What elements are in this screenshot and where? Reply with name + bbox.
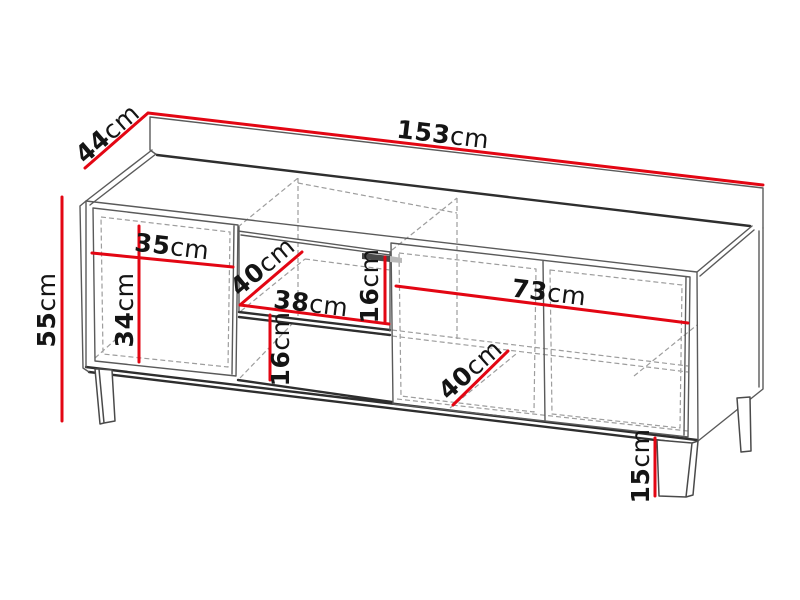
right-side-panel [697, 226, 763, 441]
left-side-panel [80, 201, 89, 372]
dimension-label-leg-height: 15cm [626, 429, 655, 504]
dimension-diagram: 153cm 44cm 55cm 35cm 34cm 40cm 38cm 16cm… [0, 0, 800, 600]
dimension-lines [62, 113, 763, 496]
dimension-label-total-width: 153cm [395, 115, 491, 155]
front-left-leg [95, 369, 115, 424]
door-handle-side [390, 256, 402, 263]
dimension-label-left-inner-height: 34cm [110, 273, 139, 348]
dimension-label-total-height: 55cm [32, 273, 61, 348]
dimension-label-upper-shelf-height: 16cm [355, 249, 384, 324]
carcass-heavy-edges [86, 155, 750, 445]
dimension-label-lower-shelf-height: 16cm [266, 312, 295, 387]
hidden-lines [95, 178, 697, 431]
back-right-leg [737, 397, 751, 452]
dimension-label-right-door-width: 73cm [510, 274, 588, 312]
dimension-label-depth: 44cm [70, 98, 146, 169]
tv-stand-drawing: 153cm 44cm 55cm 35cm 34cm 40cm 38cm 16cm… [0, 0, 800, 600]
front-right-leg [657, 440, 698, 497]
